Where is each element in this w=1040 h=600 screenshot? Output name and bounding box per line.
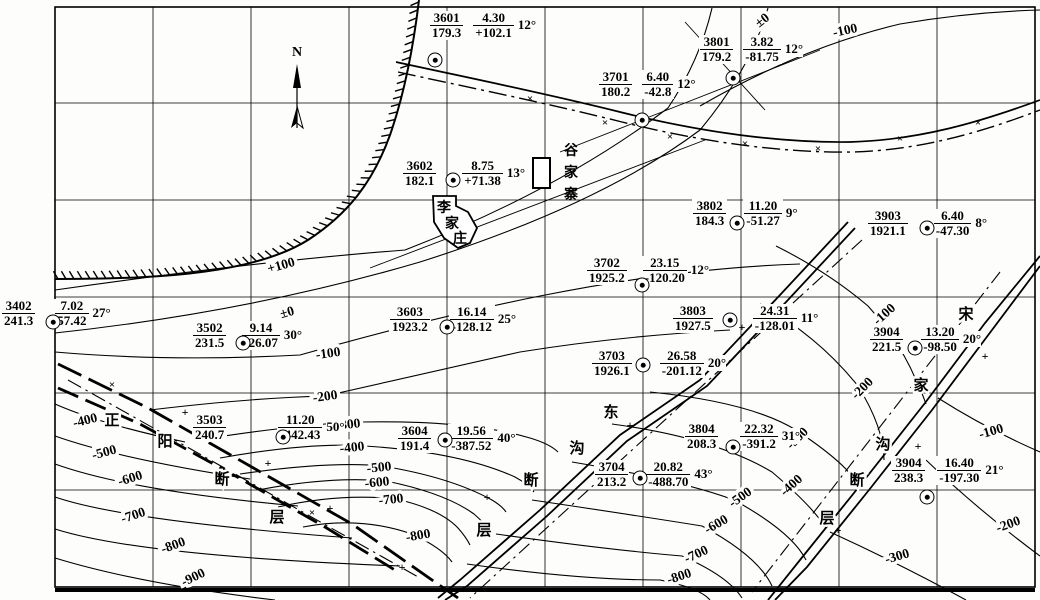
borehole-dip-angle: 9° [786, 205, 798, 221]
borehole-thickness-floor: 19.56-387.52 [448, 424, 494, 453]
borehole-dip-angle: 12° [785, 41, 803, 57]
contour-label: -300 [883, 545, 911, 566]
borehole-id-elevation: 3502231.5 [192, 321, 227, 350]
borehole-thickness-floor: 16.14-128.12 [449, 305, 495, 334]
fault-name-char: 正 [104, 412, 119, 429]
hachure-tick [331, 213, 340, 216]
fault-cross-mark: × [667, 131, 673, 143]
borehole-dot-3801 [726, 71, 741, 86]
contour-minus600-l [55, 464, 298, 506]
fault-name-char: 阳 [157, 433, 172, 450]
borehole-thickness-floor: 6.40-42.8 [641, 70, 674, 99]
fault-name-char: 家 [913, 376, 928, 394]
fault-plus-mark: + [915, 439, 922, 453]
denudation-boundary [55, 0, 419, 279]
hachure-tick [157, 269, 162, 276]
contour-label: -700 [378, 490, 404, 508]
hachure-tick [280, 246, 287, 251]
hachure-tick [347, 196, 356, 197]
borehole-dot-3904 [920, 490, 935, 505]
fault-cross-mark: × [815, 143, 821, 155]
borehole-id-elevation: 3601179.3 [429, 11, 464, 40]
hachure-tick [294, 239, 302, 244]
borehole-dot-3603 [440, 320, 455, 335]
contour-minus800-l [55, 529, 400, 566]
fault-name-char: 宋 [957, 305, 974, 323]
borehole-thickness-floor: 11.20-51.27 [743, 199, 783, 228]
hachure-tick [220, 262, 226, 269]
hachure-tick [372, 157, 381, 158]
hachure-tick [258, 253, 265, 259]
borehole-id-elevation: 38031927.5 [672, 304, 714, 333]
contour-label: -200 [312, 387, 339, 405]
contour-label: -600 [702, 511, 731, 536]
borehole-dot-3702 [635, 278, 650, 293]
hachure-tick [352, 190, 361, 191]
borehole-dip-angle: 12° [677, 76, 695, 92]
geological-structure-map: N ××××××××××++++++++++ +100±0±0-100-100-… [0, 0, 1040, 600]
denudation-hachures [53, 2, 418, 279]
borehole-dot-3704 [633, 471, 648, 486]
village-name-char: 寨 [563, 186, 579, 202]
fault-plus-mark: + [399, 560, 406, 574]
borehole-dip-angle: 25° [498, 311, 516, 327]
borehole-dip-angle: 8° [975, 215, 987, 231]
borehole-dip-angle: 43° [694, 466, 712, 482]
borehole-id-elevation: 3604191.4 [397, 424, 432, 453]
borehole-id-elevation: 3503240.7 [192, 413, 227, 442]
fault-name-char: 沟 [875, 435, 890, 453]
borehole-label-3703: 37031926.126.58-201.1220° [591, 349, 726, 378]
borehole-dot-3502 [236, 336, 251, 351]
borehole-dip-angle: 20° [708, 355, 726, 371]
contour-minus600-c [532, 500, 772, 586]
borehole-id-elevation: 3904221.5 [869, 325, 904, 354]
borehole-label-3803: 38031927.524.31-128.0111° [672, 304, 818, 333]
contour-label: -800 [665, 565, 693, 587]
fault-plus-mark: + [327, 501, 334, 515]
hachure-tick [133, 270, 138, 278]
hachure-tick [77, 271, 82, 279]
hachure-tick [356, 184, 365, 185]
borehole-dot-3904 [908, 341, 923, 356]
village-name-char: 家 [445, 215, 460, 231]
hachure-tick [61, 271, 66, 279]
borehole-dip-angle: 21° [985, 462, 1003, 478]
contour-label: -800 [159, 534, 188, 557]
fault-plus-mark: + [982, 349, 989, 363]
borehole-thickness-floor: 22.32-391.2 [739, 422, 779, 451]
borehole-dot-3604 [438, 433, 453, 448]
borehole-dip-angle: 50° [326, 419, 344, 435]
borehole-dip-angle: 20° [963, 331, 981, 347]
borehole-label-3904: 3904221.513.20-98.5020° [869, 325, 981, 354]
borehole-thickness-floor: 8.75+71.38 [461, 159, 504, 188]
borehole-label-3503: 3503240.711.20-442.4350° [192, 413, 345, 442]
borehole-id-elevation: 36031923.2 [389, 305, 431, 334]
borehole-dip-angle: 12° [518, 17, 536, 33]
borehole-dip-angle: 31° [782, 428, 800, 444]
hachure-tick [243, 257, 249, 263]
contour-label: -200 [848, 374, 876, 402]
fault-cross-mark: × [897, 133, 903, 145]
borehole-dot-3402 [46, 315, 61, 330]
contour-label: -700 [119, 504, 147, 526]
borehole-label-3701: 3701180.26.40-42.812° [598, 70, 696, 99]
borehole-label-3704: 3704213.220.82-488.7043° [594, 460, 713, 489]
fault-name-char: 断 [849, 471, 864, 489]
hachure-tick [125, 270, 130, 278]
fault-name-char: 层 [269, 509, 284, 526]
hachure-tick [307, 232, 315, 236]
borehole-thickness-floor: 4.30+102.1 [472, 11, 515, 40]
north-arrow: N [291, 45, 303, 128]
contour-label: -900 [179, 565, 208, 589]
fault-plus-mark: + [627, 418, 634, 432]
borehole-thickness-floor: 6.40-47.30 [933, 209, 973, 238]
borehole-id-elevation: 3602182.1 [402, 159, 437, 188]
borehole-dot-3802 [730, 216, 745, 231]
fault-plus-mark: + [484, 490, 491, 504]
borehole-id-elevation: 3402241.3 [1, 299, 36, 328]
borehole-dot-3701 [635, 113, 650, 128]
hachure-tick [313, 227, 321, 230]
borehole-dot-3903 [920, 221, 935, 236]
fault-plus-mark: + [182, 405, 189, 419]
structure-contours [55, 8, 1040, 600]
borehole-id-elevation: 3904238.3 [891, 456, 926, 485]
hachure-tick [101, 271, 106, 279]
hachure-tick [272, 248, 279, 254]
borehole-thickness-floor: 16.40-197.30 [936, 456, 982, 485]
borehole-id-elevation: 39031921.1 [867, 209, 909, 238]
contour-label: -600 [364, 473, 390, 491]
fault-cross-mark: × [975, 117, 981, 129]
contour-label: -400 [777, 471, 806, 499]
borehole-label-3604: 3604191.419.56-387.5240° [397, 424, 516, 453]
contour-label: -200 [994, 513, 1023, 536]
borehole-dot-3804 [726, 440, 741, 455]
borehole-label-3601: 3601179.34.30+102.112° [429, 11, 536, 40]
fault-plus-mark: + [835, 523, 842, 537]
borehole-label-3802: 3802184.311.20-51.279° [692, 199, 798, 228]
fault-cross-mark: × [742, 138, 748, 150]
borehole-dot-3602 [446, 173, 461, 188]
borehole-dip-angle: 13° [507, 165, 525, 181]
borehole-dot-3703 [636, 358, 651, 373]
village-name-char: 庄 [453, 230, 467, 246]
borehole-thickness-floor: 13.20-98.50 [920, 325, 960, 354]
fault-name-char: 层 [476, 522, 491, 539]
fault-cross-mark: × [309, 507, 315, 519]
hachure-tick [287, 243, 294, 248]
borehole-thickness-floor: 3.82-81.75 [742, 35, 782, 64]
fault-name-char: 沟 [569, 439, 584, 457]
village-name-char: 家 [564, 164, 579, 180]
contour-label: ±0 [278, 303, 296, 321]
hachure-tick [69, 271, 74, 279]
hachure-tick [300, 236, 308, 240]
borehole-label-3801: 3801179.23.82-81.7512° [699, 35, 803, 64]
borehole-dot-3601 [428, 53, 443, 68]
borehole-id-elevation: 37031926.1 [591, 349, 633, 378]
hachure-tick [109, 271, 114, 279]
hachure-tick [325, 218, 334, 221]
borehole-thickness-floor: 20.82-488.70 [645, 460, 691, 489]
borehole-dot-3503 [276, 430, 291, 445]
contour-minus900-l [55, 558, 275, 600]
fault-cross-mark: × [527, 93, 533, 105]
map-canvas: N ××××××××××++++++++++ +100±0±0-100-100-… [0, 0, 1040, 600]
borehole-label-3602: 3602182.18.75+71.3813° [402, 159, 525, 188]
borehole-id-elevation: 37021925.2 [586, 256, 628, 285]
fault-name-char: 层 [819, 510, 834, 527]
borehole-id-elevation: 3801179.2 [699, 35, 734, 64]
borehole-thickness-floor: 26.58-201.12 [659, 349, 705, 378]
borehole-dot-3803 [723, 313, 738, 328]
contour-label: ±0 [752, 10, 773, 31]
borehole-id-elevation: 3704213.2 [594, 460, 629, 489]
borehole-label-3904: 3904238.316.40-197.3021° [891, 456, 1004, 485]
borehole-id-elevation: 3804208.3 [684, 422, 719, 451]
village-name-char: 李 [436, 199, 452, 215]
borehole-thickness-floor: 24.31-128.01 [752, 304, 798, 333]
north-arrow-label: N [292, 45, 302, 60]
contour-label: -500 [726, 484, 755, 511]
hachure-tick [117, 270, 122, 278]
borehole-dip-angle: 30° [284, 327, 302, 343]
contour-label: -500 [90, 441, 118, 462]
hachure-tick [235, 259, 241, 266]
hachure-tick [319, 223, 327, 226]
hachure-tick [85, 271, 90, 279]
borehole-id-elevation: 3701180.2 [598, 70, 633, 99]
fault-name-char: 断 [214, 470, 229, 488]
hachure-tick [93, 271, 98, 279]
fault-cross-mark: × [602, 117, 608, 129]
fault-name-char: 东 [603, 403, 618, 421]
borehole-label-3804: 3804208.322.32-391.231° [684, 422, 800, 451]
fault-plus-mark: + [265, 456, 272, 470]
village-gujiazhai-building [533, 158, 550, 188]
borehole-dip-angle: 40° [497, 430, 515, 446]
hachure-tick [227, 260, 233, 267]
borehole-id-elevation: 3802184.3 [692, 199, 727, 228]
borehole-dip-angle: 12° [691, 262, 709, 278]
fault-name-char: 断 [523, 471, 538, 489]
hachure-tick [141, 269, 146, 277]
borehole-dip-angle: 27° [93, 305, 111, 321]
hachure-tick [337, 207, 346, 209]
fault-cross-mark: × [109, 379, 115, 391]
hachure-tick [265, 251, 272, 257]
contour-label: -100 [315, 344, 342, 362]
borehole-dip-angle: 11° [801, 310, 818, 326]
village-name-char: 谷 [564, 142, 579, 158]
